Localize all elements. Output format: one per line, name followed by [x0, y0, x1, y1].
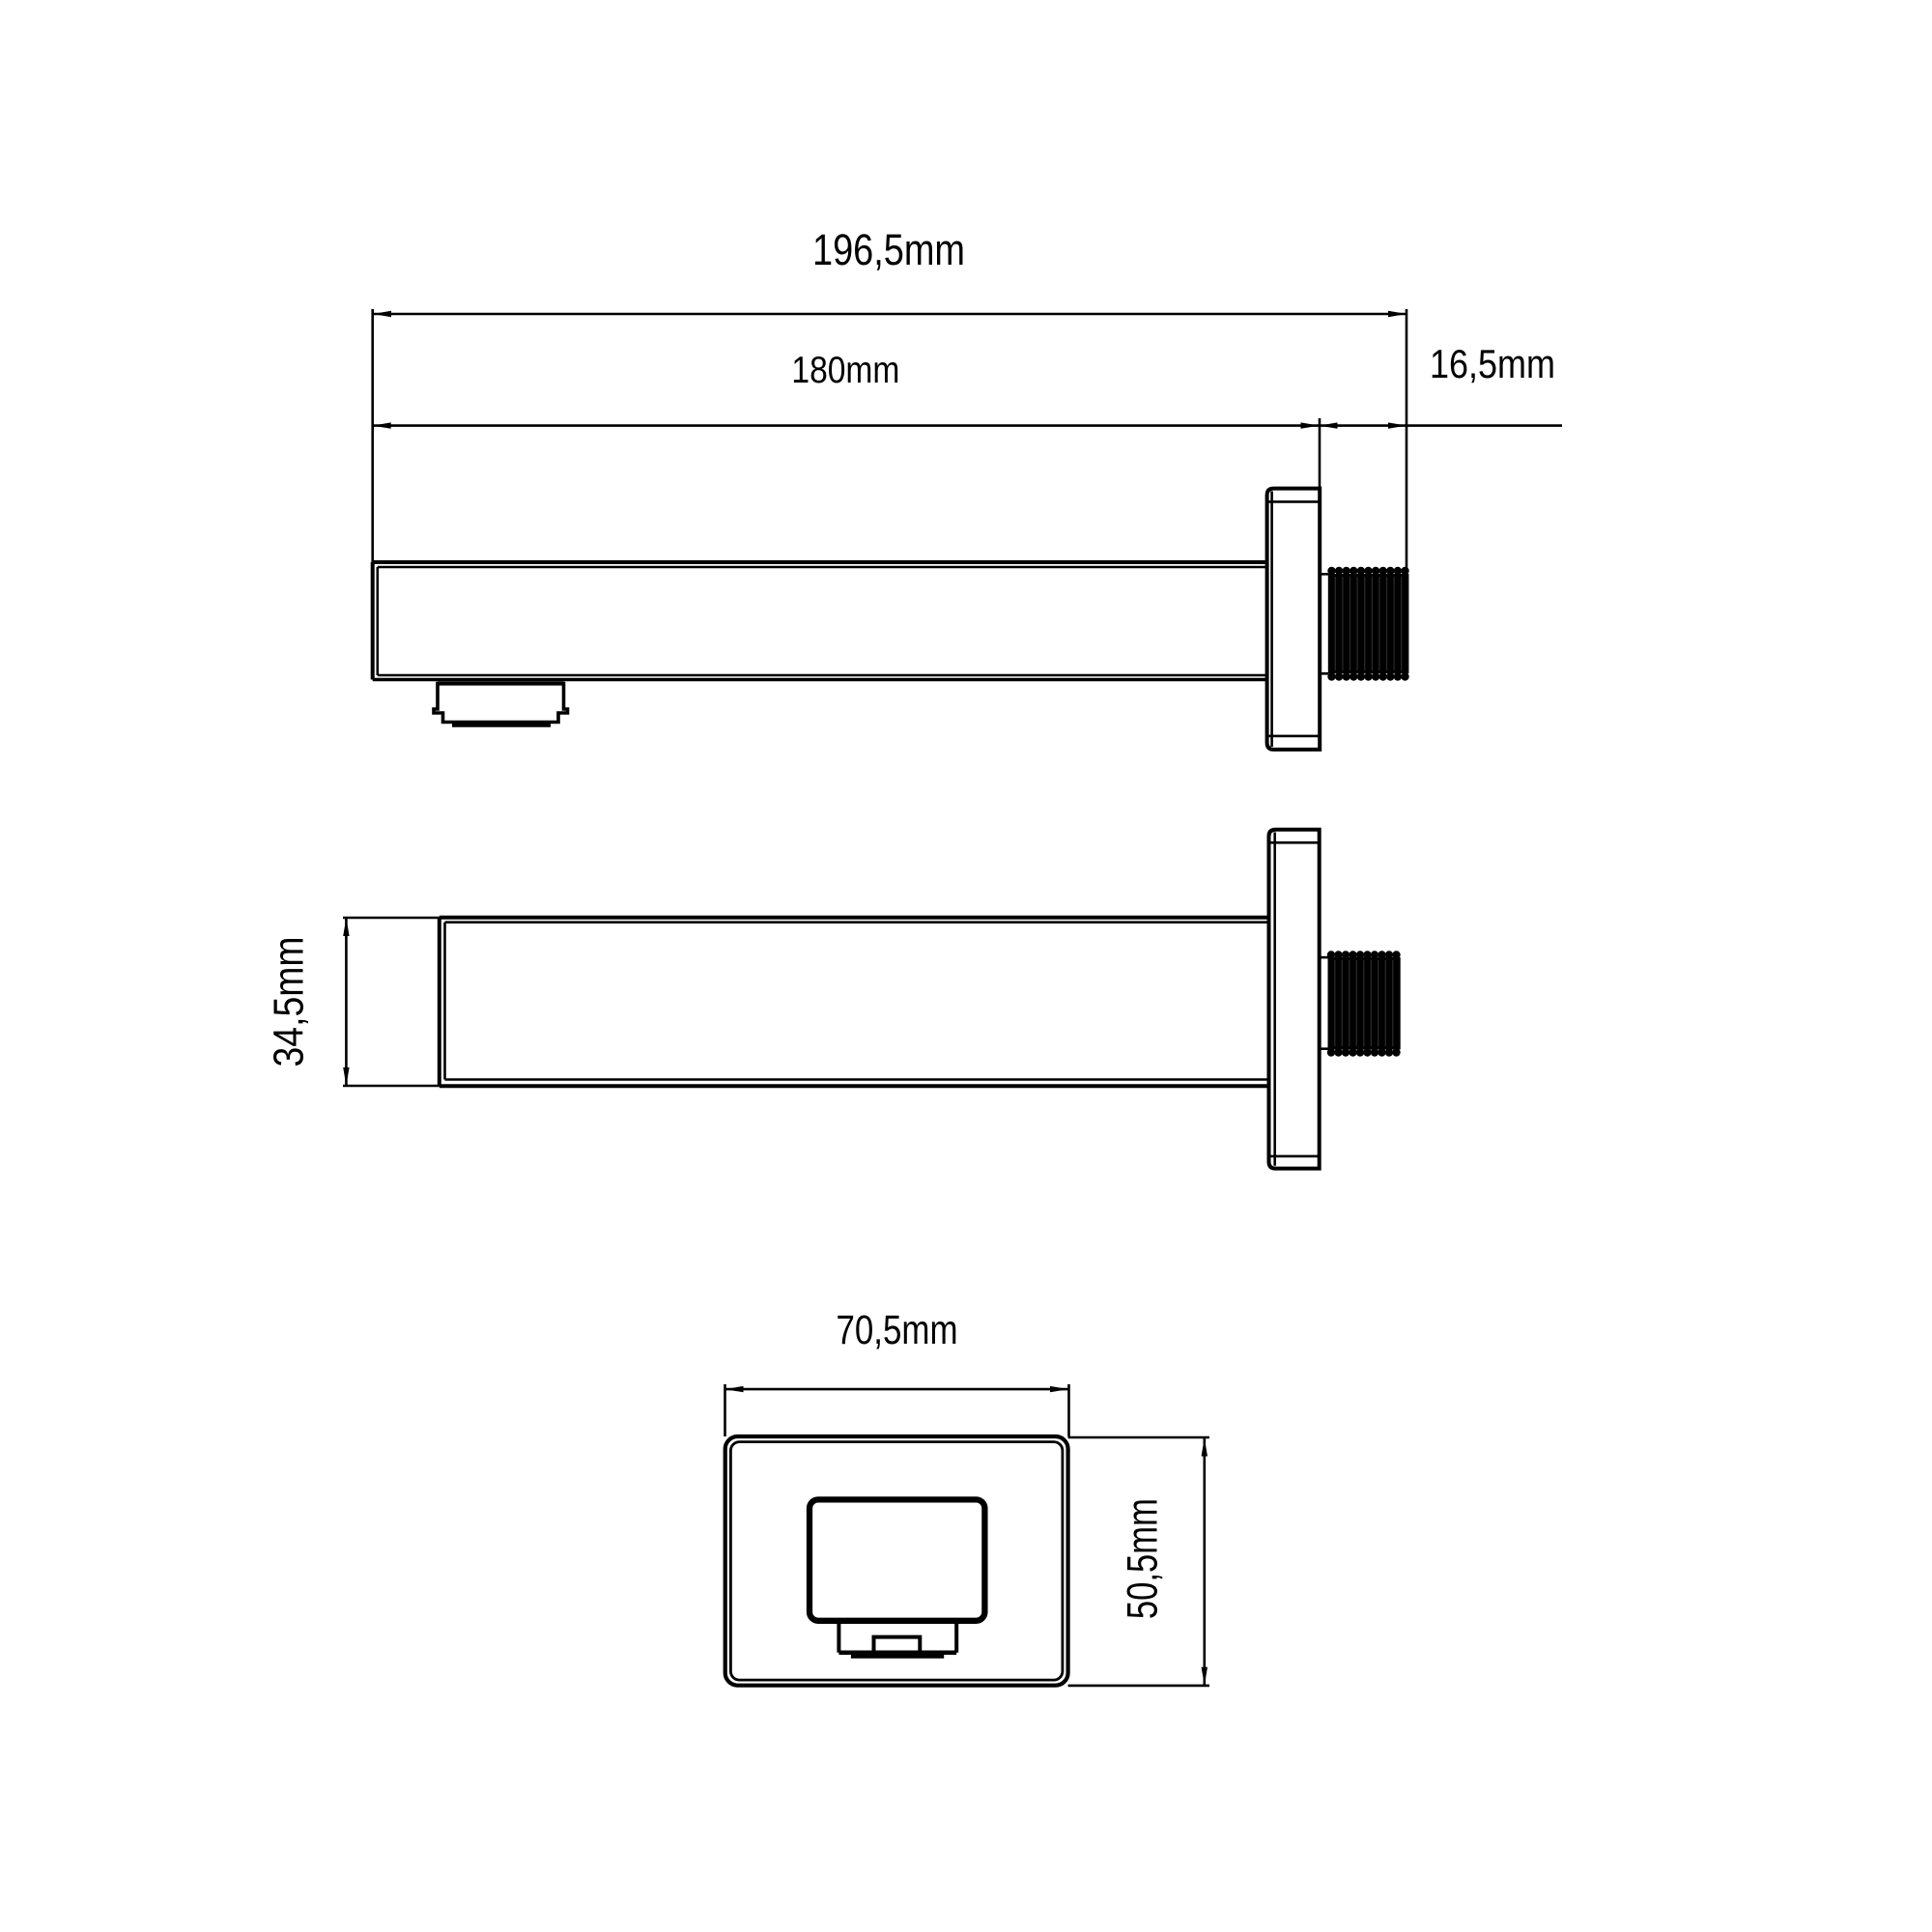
- svg-text:70,5mm: 70,5mm: [837, 1308, 958, 1353]
- svg-text:50,5mm: 50,5mm: [1120, 1498, 1167, 1619]
- svg-text:196,5mm: 196,5mm: [812, 225, 965, 274]
- svg-text:34,5mm: 34,5mm: [267, 937, 313, 1067]
- svg-text:180mm: 180mm: [791, 350, 899, 391]
- svg-text:16,5mm: 16,5mm: [1430, 341, 1555, 386]
